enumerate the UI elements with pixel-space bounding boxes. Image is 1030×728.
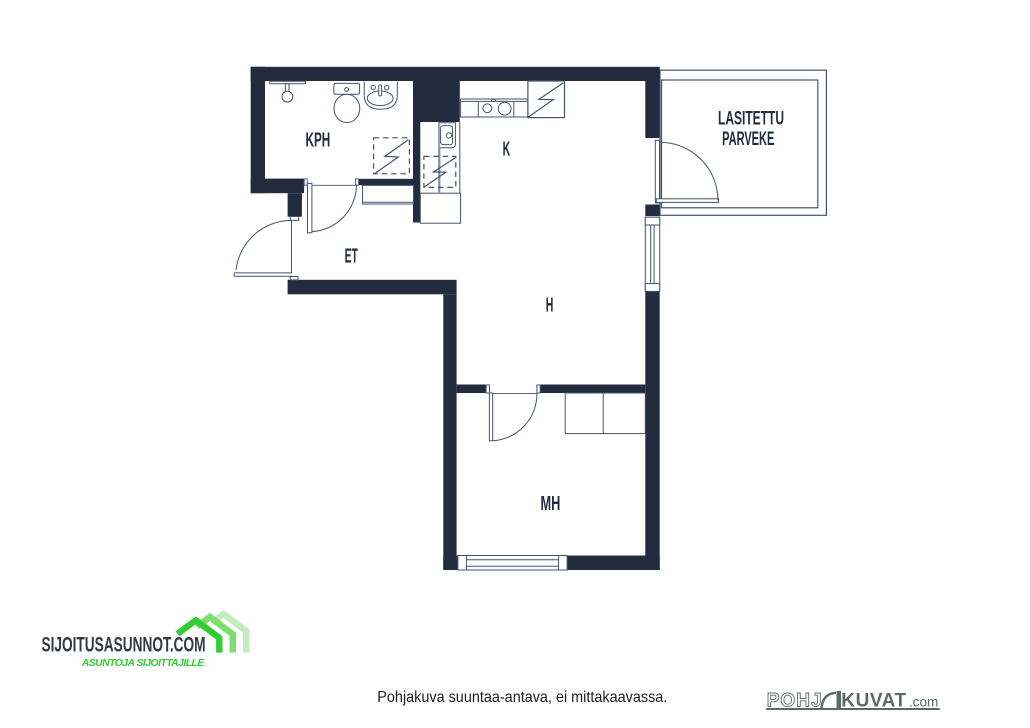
- svg-text:K: K: [503, 137, 511, 160]
- svg-text:Pohjakuva suuntaa-antava, ei m: Pohjakuva suuntaa-antava, ei mittakaavas…: [377, 689, 667, 706]
- svg-text:ET: ET: [345, 245, 359, 268]
- svg-text:H: H: [546, 294, 554, 317]
- svg-text:LASITETTU: LASITETTU: [718, 108, 784, 130]
- svg-text:ASUNTOJA SIJOITTAJILLE: ASUNTOJA SIJOITTAJILLE: [81, 658, 206, 669]
- svg-text:.com: .com: [909, 695, 939, 710]
- svg-text:SIJOITUSASUNNOT.COM: SIJOITUSASUNNOT.COM: [42, 633, 206, 657]
- svg-text:PARVEKE: PARVEKE: [722, 128, 774, 150]
- svg-text:KPH: KPH: [306, 129, 331, 152]
- svg-text:MH: MH: [541, 492, 561, 515]
